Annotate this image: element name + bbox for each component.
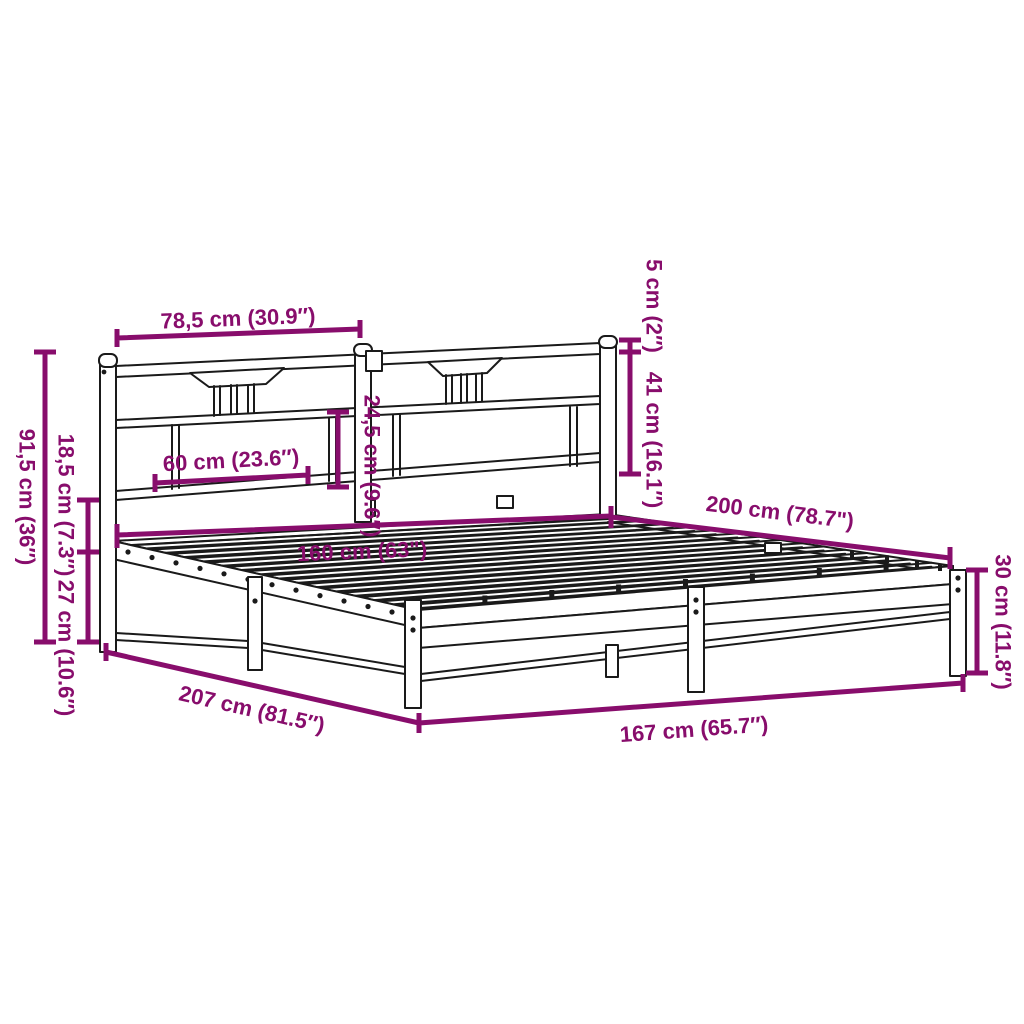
dim-label-panel-height: 24,5 cm (9.6″) [359, 395, 384, 538]
dim-headboard-section-width: 78,5 cm (30.9″) [117, 303, 360, 347]
dim-cap-and-headboard-height: 5 cm (2″) 41 cm (16.1″) [619, 259, 666, 508]
dim-label-frame-width: 167 cm (65.7″) [619, 711, 769, 747]
dim-label-foot-height: 30 cm (11.8″) [990, 554, 1015, 689]
dimension-annotations: 78,5 cm (30.9″) 5 cm (2″) 41 cm (16.1″) … [14, 259, 1015, 747]
dim-foot-height: 30 cm (11.8″) [966, 554, 1015, 689]
dim-label-clearance: 27 cm (10.6″) [53, 580, 78, 717]
dim-total-height: 91,5 cm (36″) [14, 352, 56, 642]
dim-label-rail-height: 18,5 cm (7.3″) [53, 434, 78, 577]
diagram-canvas: 78,5 cm (30.9″) 5 cm (2″) 41 cm (16.1″) … [0, 0, 1024, 1024]
dim-label-cap-height: 5 cm (2″) [641, 259, 666, 353]
side-stretcher [116, 633, 248, 648]
dim-label-headboard-height: 41 cm (16.1″) [641, 372, 666, 509]
dim-rail-and-clearance-height: 18,5 cm (7.3″) 27 cm (10.6″) [53, 434, 99, 717]
dim-label-mattress-length: 200 cm (78.7") [705, 491, 856, 534]
dim-label-mattress-width: 160 cm (63") [296, 536, 427, 566]
bed-frame-dimension-diagram: 78,5 cm (30.9″) 5 cm (2″) 41 cm (16.1″) … [0, 0, 1024, 1024]
dim-label-panel-width: 60 cm (23.6″) [162, 444, 300, 476]
dim-label-frame-length: 207 cm (81.5″) [177, 681, 328, 738]
dim-label-total-height: 91,5 cm (36″) [14, 429, 39, 566]
